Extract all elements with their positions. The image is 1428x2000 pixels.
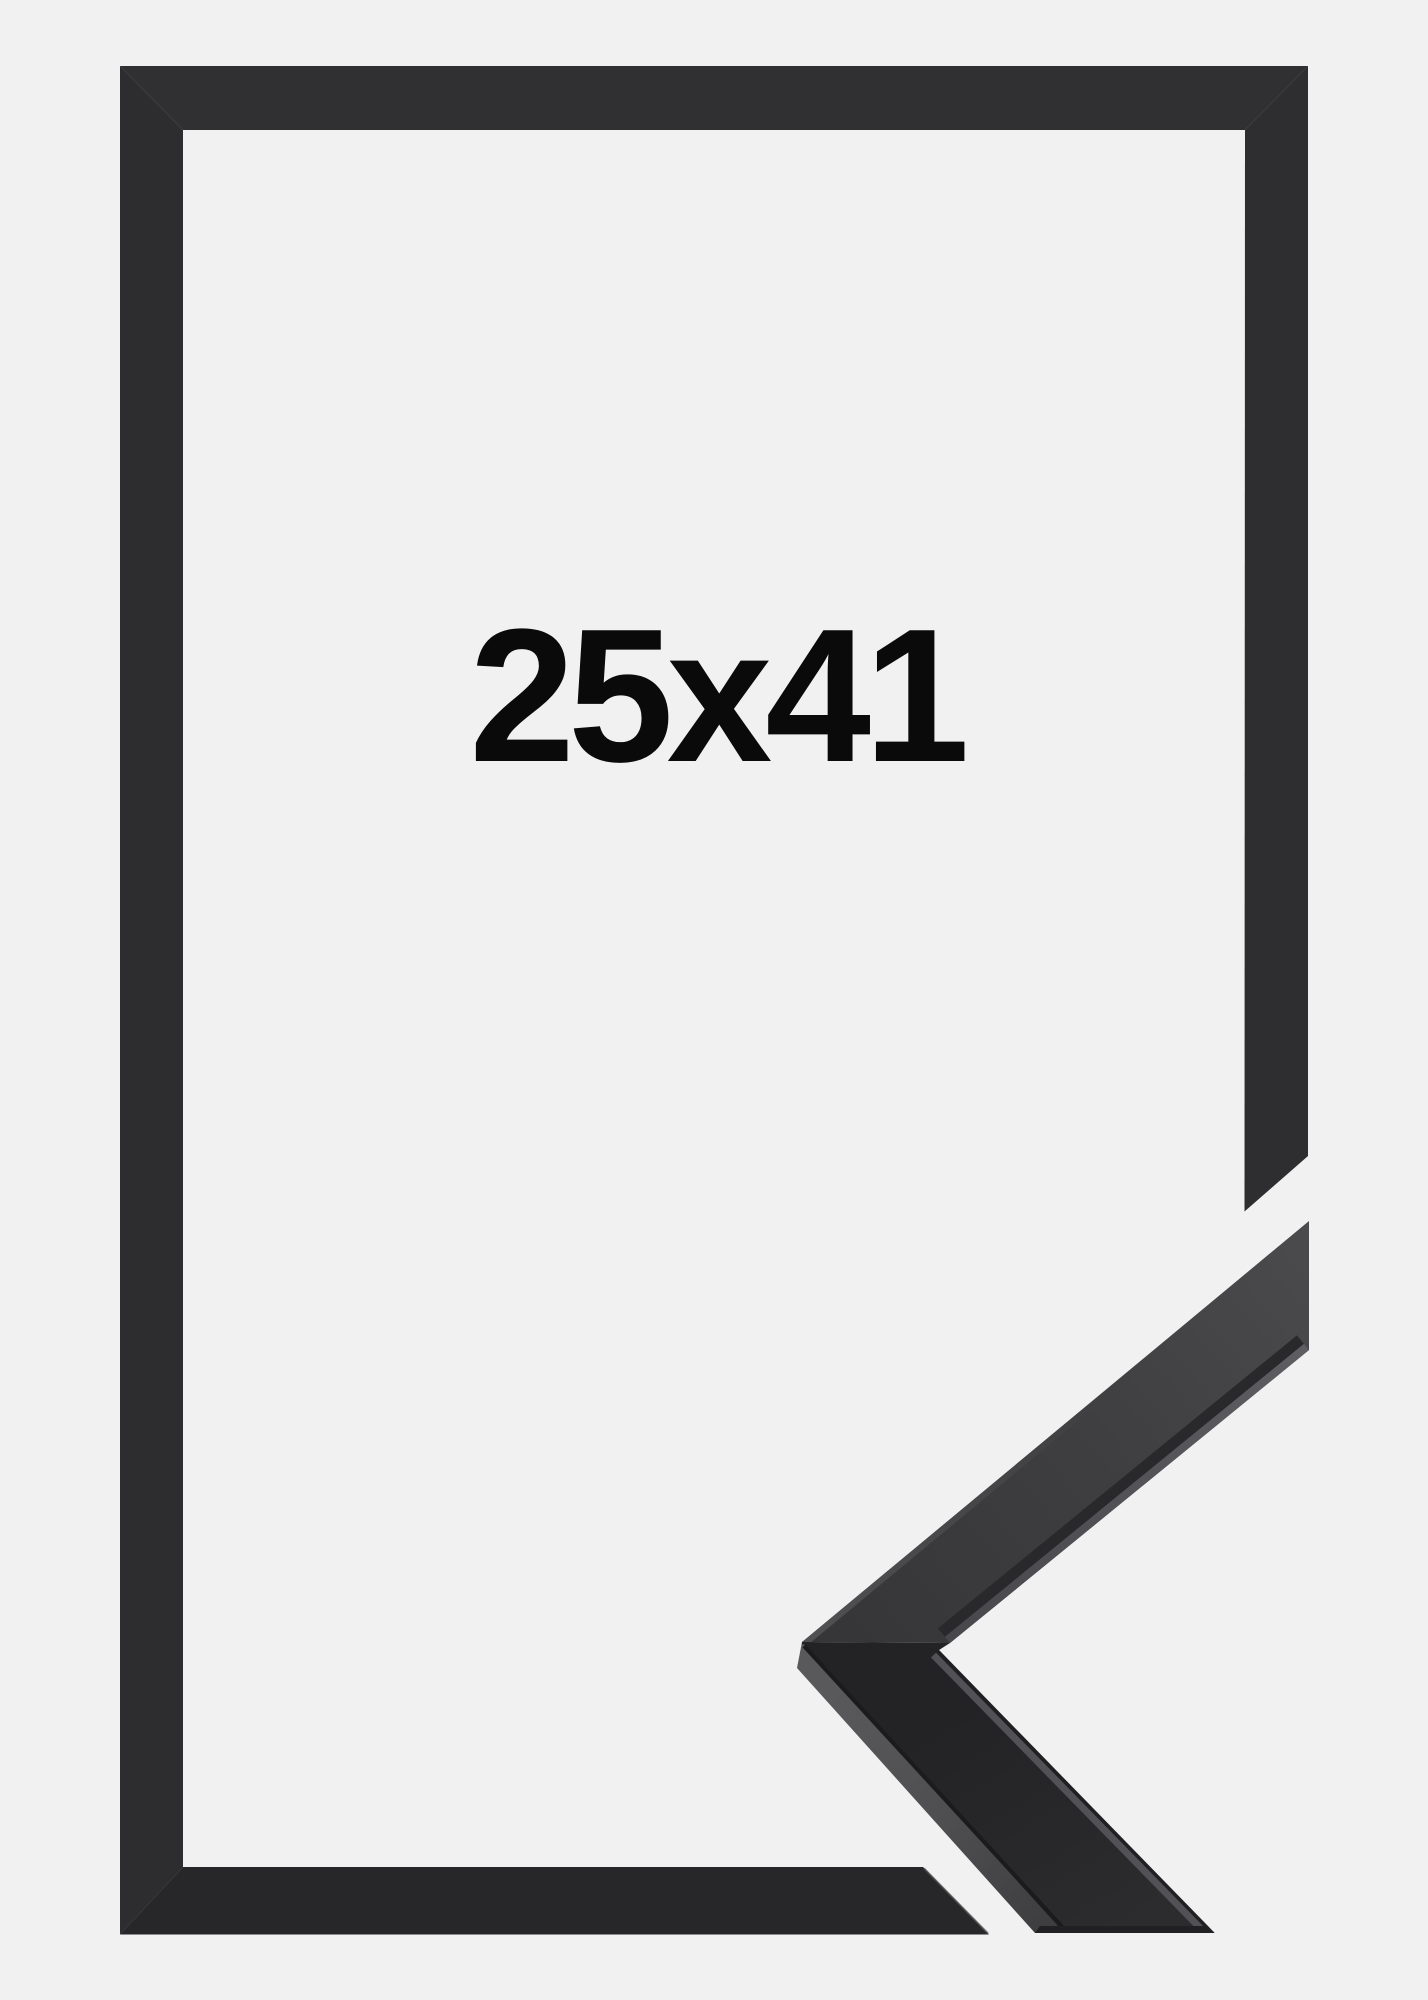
svg-text:25x41: 25x41	[469, 590, 965, 802]
